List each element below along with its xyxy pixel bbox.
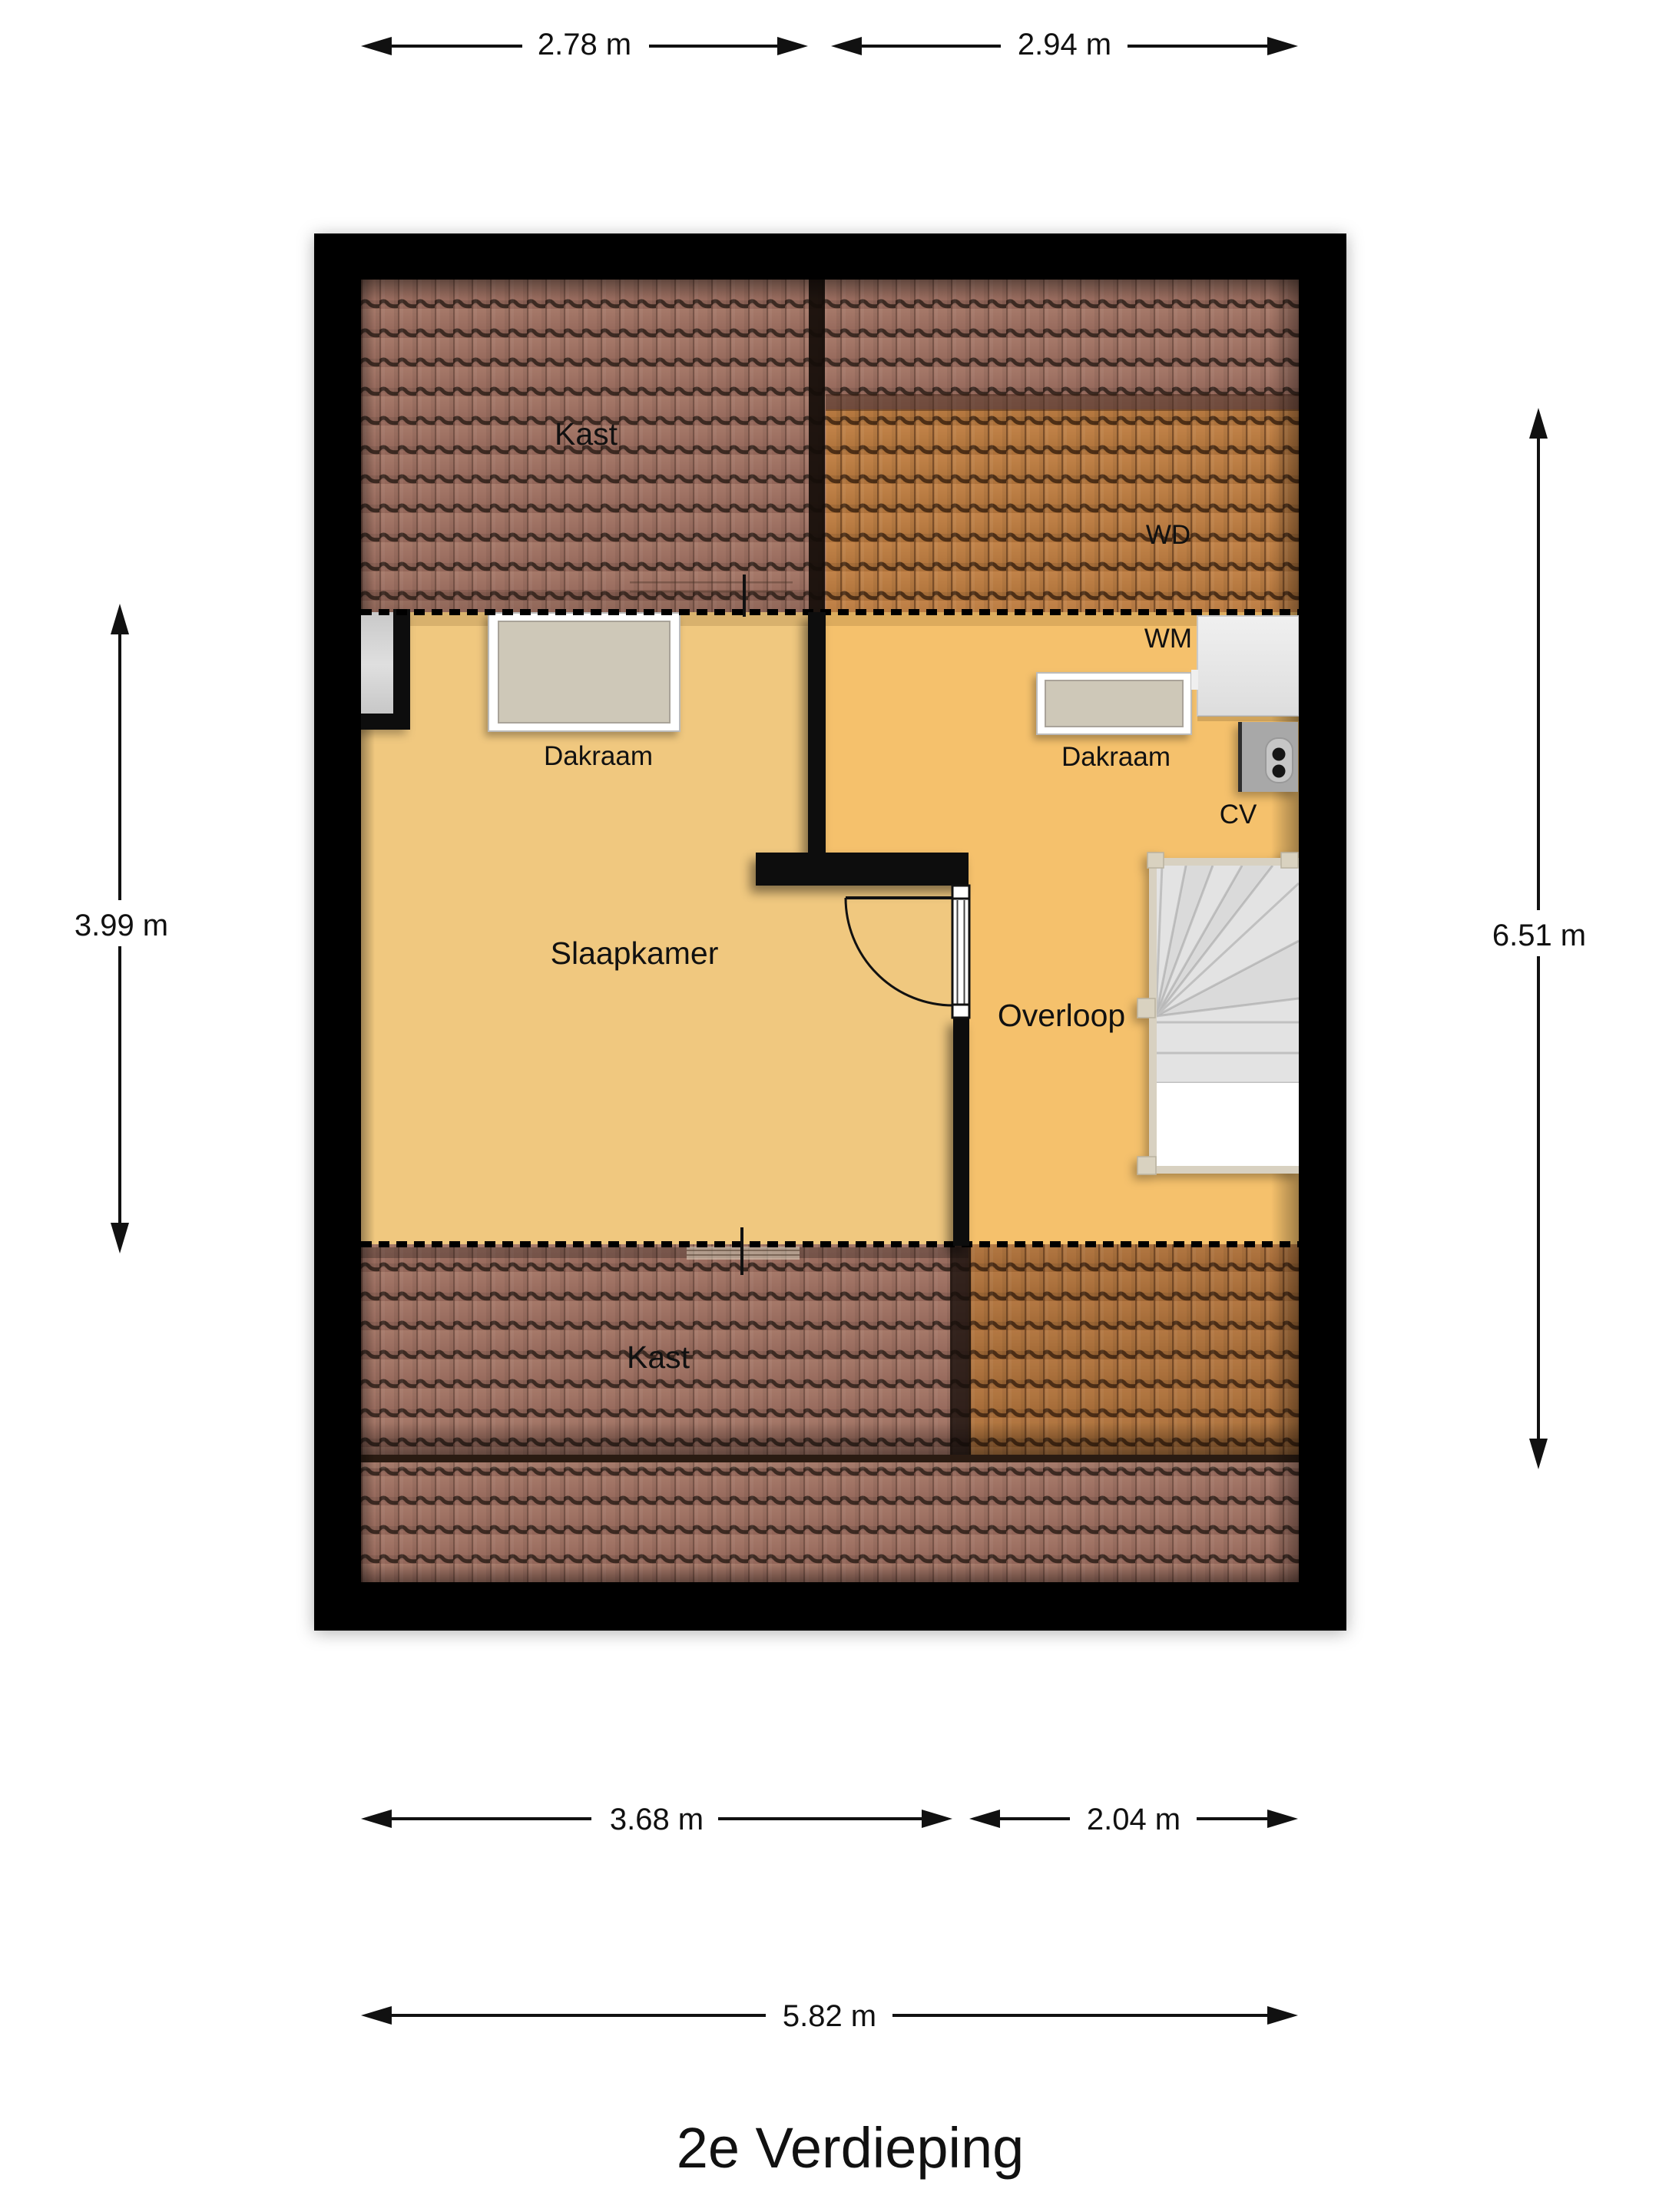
svg-text:Dakraam: Dakraam bbox=[544, 741, 653, 771]
svg-text:Kast: Kast bbox=[555, 416, 618, 452]
svg-text:Dakraam: Dakraam bbox=[1061, 742, 1171, 772]
svg-text:2.94 m: 2.94 m bbox=[1018, 28, 1111, 61]
svg-text:2.78 m: 2.78 m bbox=[538, 28, 631, 61]
svg-text:CV: CV bbox=[1220, 800, 1257, 829]
svg-text:2.04 m: 2.04 m bbox=[1087, 1803, 1181, 1836]
svg-text:3.99 m: 3.99 m bbox=[75, 909, 168, 942]
svg-text:Kast: Kast bbox=[627, 1339, 690, 1375]
svg-text:6.51 m: 6.51 m bbox=[1492, 919, 1586, 952]
svg-text:Overloop: Overloop bbox=[998, 998, 1125, 1033]
svg-text:WM: WM bbox=[1144, 624, 1192, 654]
svg-text:2e Verdieping: 2e Verdieping bbox=[677, 2116, 1025, 2180]
svg-text:5.82 m: 5.82 m bbox=[783, 1999, 876, 2033]
svg-text:Slaapkamer: Slaapkamer bbox=[551, 935, 719, 971]
svg-text:3.68 m: 3.68 m bbox=[610, 1803, 704, 1836]
svg-text:WD: WD bbox=[1146, 520, 1190, 550]
